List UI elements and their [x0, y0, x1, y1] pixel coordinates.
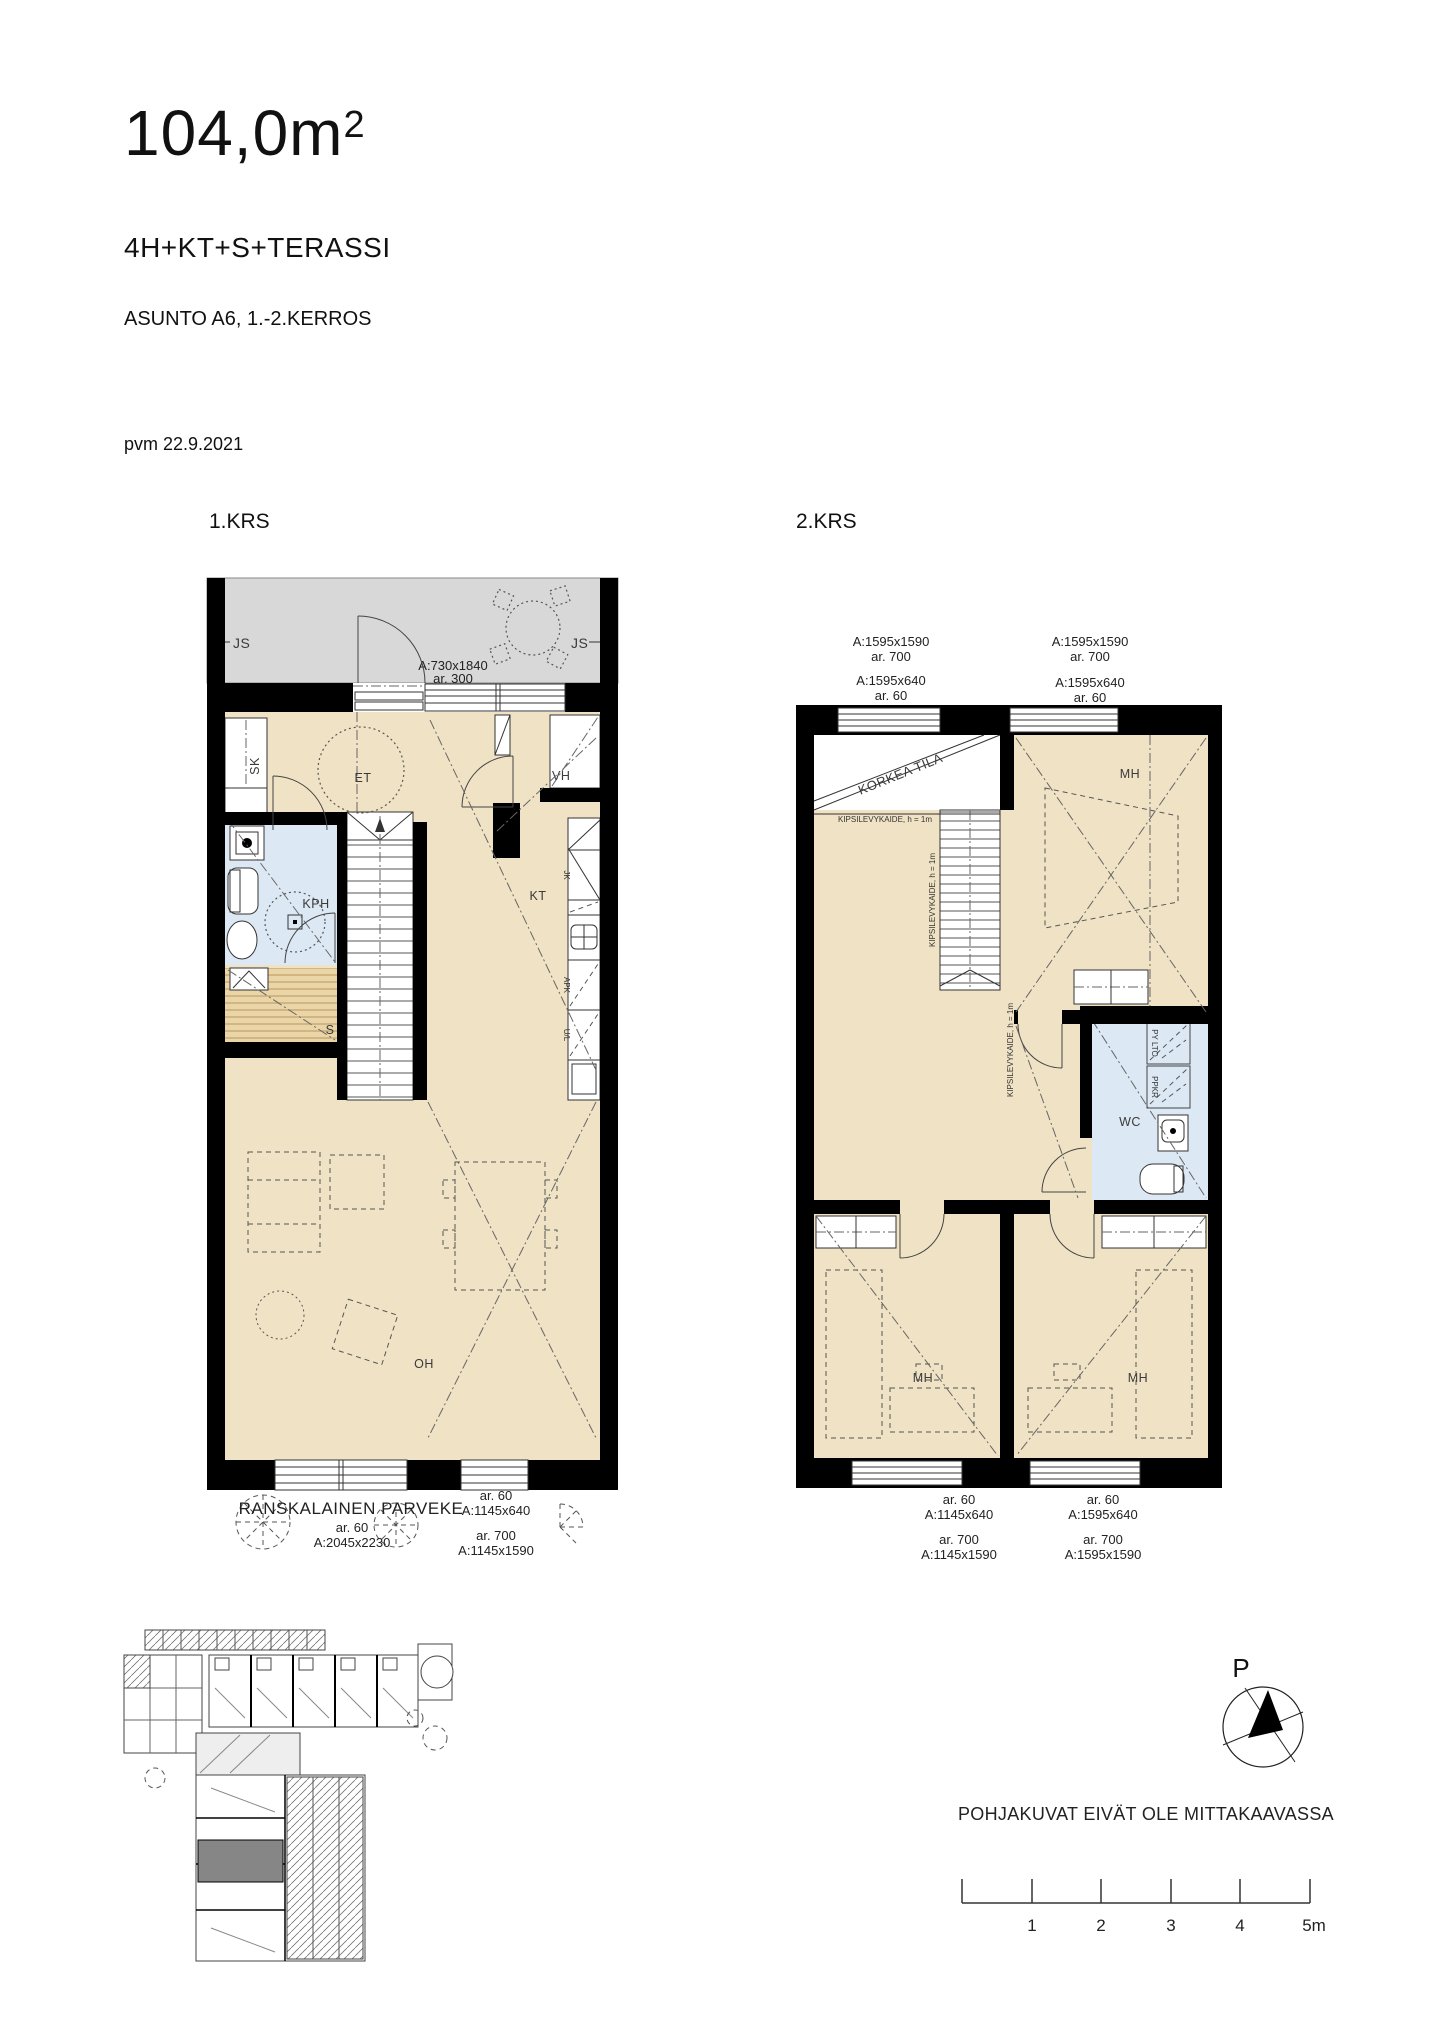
js-left-label: JS: [233, 635, 250, 651]
wc-cabinet-top-label: PY LTO: [1150, 1029, 1159, 1057]
dishwasher-label: APK: [562, 977, 571, 994]
floor1-label: 1.KRS: [209, 510, 270, 534]
floor-plan-sheet: 104,0m2 4H+KT+S+TERASSI ASUNTO A6, 1.-2.…: [0, 0, 1440, 2036]
area-superscript: 2: [343, 104, 365, 146]
floor2-label: 2.KRS: [796, 510, 857, 534]
kph-label: KPH: [302, 897, 329, 911]
wc-room: PY LTO PPKR WC: [1092, 1018, 1208, 1200]
js-right-label: JS: [571, 635, 588, 651]
terrace: JS JS A:730x1840 ar. 300: [207, 578, 618, 686]
tl-dim1: A:1595x1590: [853, 634, 930, 649]
wc-label: WC: [1119, 1115, 1141, 1129]
oven-label: U/L: [562, 1029, 571, 1042]
site-buildings: [124, 1630, 453, 1961]
sauna: S: [225, 968, 337, 1042]
compass-needle: [1248, 1690, 1283, 1738]
page-title: 104,0m2: [124, 96, 366, 170]
fridge-label: JK: [562, 870, 571, 880]
apartment-type: 4H+KT+S+TERASSI: [124, 232, 391, 264]
kph-bathroom: KPH: [225, 818, 337, 965]
tr-dim2: A:1595x640: [1055, 675, 1124, 690]
sk-label: SK: [248, 757, 262, 775]
railing3-label: KIPSILEVYKAIDE, h = 1m: [1006, 1003, 1015, 1097]
date-label: pvm 22.9.2021: [124, 434, 243, 455]
staircase-1krs: [347, 812, 413, 1100]
sauna-label: S: [326, 1023, 335, 1037]
br-dim2: A:1595x1590: [1065, 1547, 1142, 1562]
bl-area2: ar. 700: [939, 1532, 979, 1547]
tl-area2: ar. 60: [875, 688, 908, 703]
scale-bar: 1 2 3 4 5m: [950, 1865, 1340, 1940]
balcony-labels: RANSKALAINEN PARVEKE ar. 60 A:2045x2230 …: [239, 1488, 534, 1558]
floor-plan-2krs: A:1595x1590 ar. 700 A:1595x640 ar. 60 A:…: [790, 570, 1230, 1580]
korkea-tila: KORKEA TILA: [814, 735, 1000, 810]
north-label: P: [1232, 1653, 1249, 1683]
kt-label: KT: [530, 889, 547, 903]
et-label: ET: [355, 771, 372, 785]
br-dim1: A:1595x640: [1068, 1507, 1137, 1522]
win-area: ar. 60: [480, 1488, 513, 1503]
french-balcony-label: RANSKALAINEN PARVEKE: [239, 1499, 464, 1518]
wc-cabinet-bottom-label: PPKR: [1150, 1076, 1159, 1098]
scale-tick-5: 5m: [1302, 1916, 1326, 1935]
tl-dim2: A:1595x640: [856, 673, 925, 688]
oh-label: OH: [414, 1357, 434, 1371]
scale-tick-2: 2: [1096, 1916, 1105, 1935]
site-highlight-unit: [198, 1840, 283, 1882]
north-arrow: P: [1205, 1645, 1335, 1775]
balcony-dim: A:2045x2230: [314, 1535, 391, 1550]
balcony-area: ar. 60: [336, 1520, 369, 1535]
mh-top-label: MH: [1120, 767, 1140, 781]
bottom-dimension-labels-2krs: ar. 60 A:1145x640 ar. 700 A:1145x1590 ar…: [921, 1492, 1141, 1562]
door-area: ar. 700: [476, 1528, 516, 1543]
railing1-label: KIPSILEVYKAIDE, h = 1m: [838, 815, 932, 824]
site-plan: [115, 1628, 475, 1973]
sk-closet: SK: [225, 718, 267, 813]
tr-dim1: A:1595x1590: [1052, 634, 1129, 649]
br-area1: ar. 60: [1087, 1492, 1120, 1507]
bl-area1: ar. 60: [943, 1492, 976, 1507]
scale-bar-line: [962, 1879, 1310, 1903]
kitchen-units: JK APK U/L: [562, 818, 600, 1100]
mh-right-label: MH: [1128, 1371, 1148, 1385]
apartment-info: ASUNTO A6, 1.-2.KERROS: [124, 308, 372, 331]
tr-area2: ar. 60: [1074, 690, 1107, 705]
bl-dim1: A:1145x640: [925, 1507, 993, 1522]
disclaimer-text: POHJAKUVAT EIVÄT OLE MITTAKAAVASSA: [958, 1804, 1334, 1825]
area-value: 104,0m: [124, 97, 343, 169]
bl-dim2: A:1145x1590: [921, 1547, 997, 1562]
scale-tick-3: 3: [1166, 1916, 1175, 1935]
door-dim: A:1145x1590: [458, 1543, 534, 1558]
railing2-label: KIPSILEVYKAIDE, h = 1m: [928, 853, 937, 947]
scale-tick-4: 4: [1235, 1916, 1244, 1935]
tr-area1: ar. 700: [1070, 649, 1110, 664]
tl-area1: ar. 700: [871, 649, 911, 664]
floor-plan-1krs: JS JS A:730x1840 ar. 300 SK VH: [200, 570, 640, 1580]
win-dim: A:1145x640: [462, 1503, 530, 1518]
scale-tick-1: 1: [1027, 1916, 1036, 1935]
top-dimension-labels: A:1595x1590 ar. 700 A:1595x640 ar. 60 A:…: [853, 634, 1129, 705]
vh-label: VH: [552, 769, 570, 783]
br-area2: ar. 700: [1083, 1532, 1123, 1547]
